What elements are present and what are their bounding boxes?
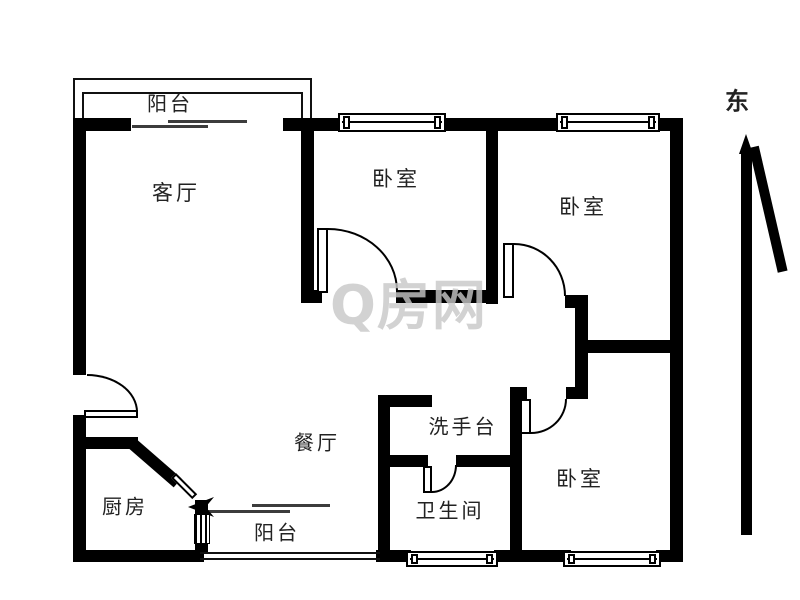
floor-plan: 阳台 客厅 卧室 卧室 餐厅 洗手台 卫生间 卧室 厨房 阳台 东 Q房网 <box>0 0 800 600</box>
wall <box>378 395 390 552</box>
wall <box>378 395 432 407</box>
sliding-door <box>208 510 290 513</box>
balcony-bottom-edge <box>200 558 380 560</box>
door-panel <box>520 399 531 434</box>
room-label-balcony-top: 阳台 <box>147 88 193 117</box>
wall <box>486 118 498 304</box>
door-arc <box>531 399 567 434</box>
door-arc <box>87 374 138 412</box>
wall <box>73 550 204 562</box>
sliding-door <box>252 504 330 507</box>
door-panel <box>503 243 514 298</box>
room-label-dining-room: 餐厅 <box>294 427 340 456</box>
window <box>406 551 498 567</box>
wall <box>73 118 131 131</box>
balcony-bottom-edge <box>200 552 380 554</box>
east-arrow-icon <box>749 146 788 273</box>
wall <box>565 295 588 308</box>
room-label-wash-basin: 洗手台 <box>429 411 498 440</box>
wall <box>378 455 428 467</box>
door-arc <box>432 465 457 493</box>
wall <box>510 387 527 399</box>
east-label: 东 <box>725 82 749 117</box>
window <box>556 113 660 132</box>
room-label-bedroom-southeast: 卧室 <box>556 463 604 493</box>
kitchen-door-panel <box>171 473 197 499</box>
wall <box>440 118 562 131</box>
room-label-living-room: 客厅 <box>152 177 200 207</box>
room-label-bathroom: 卫生间 <box>416 495 485 524</box>
door-panel <box>423 466 432 493</box>
wall <box>494 550 571 562</box>
east-arrow-icon <box>741 150 752 535</box>
sliding-door <box>132 125 208 128</box>
room-label-kitchen: 厨房 <box>102 491 148 520</box>
duct-shaft <box>194 514 210 544</box>
wall <box>283 118 345 131</box>
room-label-bedroom-north: 卧室 <box>372 163 420 193</box>
room-label-bedroom-east: 卧室 <box>559 191 607 221</box>
wall <box>73 118 86 375</box>
wall <box>587 340 682 353</box>
wall <box>301 118 314 303</box>
window <box>338 113 446 132</box>
sliding-door <box>168 120 247 123</box>
door-panel <box>84 410 138 418</box>
door-panel <box>317 228 328 293</box>
wall <box>456 455 511 467</box>
window <box>563 551 661 567</box>
room-label-balcony-bottom: 阳台 <box>254 517 300 546</box>
wall <box>566 387 588 399</box>
door-arc <box>514 243 566 296</box>
watermark: Q房网 <box>330 276 487 335</box>
